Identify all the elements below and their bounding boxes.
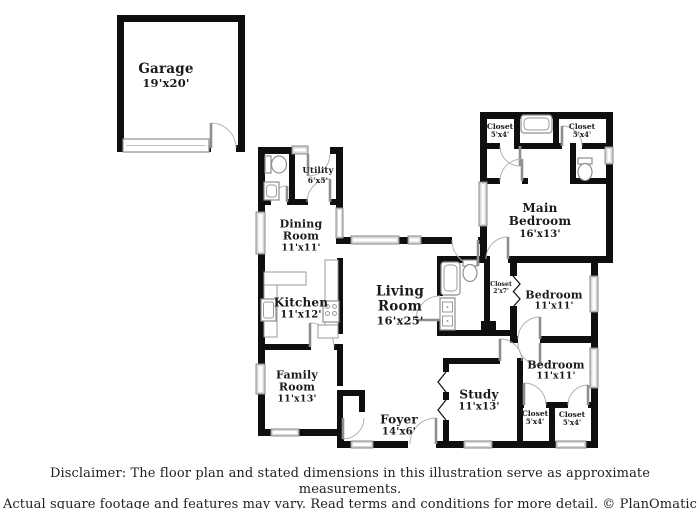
- room-label-study: Study11'x13': [458, 389, 499, 414]
- room-label-utility: Utility6'x5': [302, 167, 333, 185]
- window-icon: [464, 441, 492, 448]
- room-label-closet-bottom-right: Closet5'x4': [559, 411, 585, 427]
- sink-icon: [264, 182, 279, 200]
- bathtub-icon: [521, 115, 552, 133]
- window-icon: [256, 364, 265, 394]
- room-label-family-room: Family Room11'x13': [272, 369, 322, 404]
- window-icon: [590, 348, 598, 388]
- window-icon: [605, 147, 613, 164]
- disclaimer: Disclaimer: The floor plan and stated di…: [0, 466, 700, 509]
- bathtub-icon: [441, 262, 460, 295]
- room-label-closet-hall: Closet2'x7': [490, 282, 512, 296]
- window-icon: [351, 236, 399, 244]
- window-icon: [351, 441, 373, 448]
- room-label-bedroom-middle: Bedroom11'x11': [525, 290, 583, 313]
- disclaimer-line-2: Actual square footage and features may v…: [0, 497, 700, 509]
- door-swing-icon: [500, 339, 522, 361]
- floorplan-canvas: Garage19'x20' Utility6'x5' Dining Room11…: [0, 0, 700, 509]
- garage-door-icon: [123, 139, 209, 152]
- room-label-closet-top-left: Closet5'x4': [487, 123, 513, 139]
- bifold-door-icon: [438, 372, 446, 392]
- room-label-closet-top-right: Closet5'x4': [569, 123, 595, 139]
- room-label-closet-bottom-left: Closet5'x4': [522, 410, 548, 426]
- window-icon: [590, 276, 598, 312]
- window-icon: [292, 146, 308, 154]
- room-label-foyer: Foyer14'x6': [380, 414, 418, 439]
- room-label-bedroom-lower: Bedroom11'x11': [527, 360, 585, 383]
- room-label-kitchen: Kitchen11'x12': [274, 297, 328, 322]
- window-icon: [479, 182, 487, 226]
- door-swing-icon: [486, 237, 508, 259]
- bifold-door-icon: [513, 276, 520, 292]
- toilet-icon: [463, 260, 477, 282]
- door-swing-icon: [524, 383, 546, 405]
- window-icon: [556, 441, 586, 448]
- door-swing-icon: [568, 385, 588, 405]
- room-label-living-room: Living Room16'x25': [373, 284, 427, 327]
- room-label-garage: Garage19'x20': [138, 62, 193, 90]
- vanity-icon: [440, 298, 455, 330]
- window-icon: [336, 208, 343, 238]
- room-label-dining-room: Dining Room11'x11': [278, 218, 324, 253]
- door-swing-icon: [343, 418, 364, 439]
- window-icon: [271, 429, 299, 436]
- room-label-main-bedroom: Main Bedroom16'x13': [508, 202, 572, 240]
- bifold-door-icon: [438, 400, 446, 420]
- disclaimer-line-1: Disclaimer: The floor plan and stated di…: [0, 466, 700, 497]
- toilet-icon: [578, 158, 592, 181]
- window-icon: [256, 212, 265, 254]
- bifold-door-icon: [513, 291, 520, 307]
- window-icon: [408, 236, 421, 244]
- door-swing-icon: [518, 317, 540, 339]
- floorplan-drawing: [0, 0, 700, 509]
- toilet-icon: [265, 156, 287, 173]
- door-swing-icon: [211, 123, 236, 148]
